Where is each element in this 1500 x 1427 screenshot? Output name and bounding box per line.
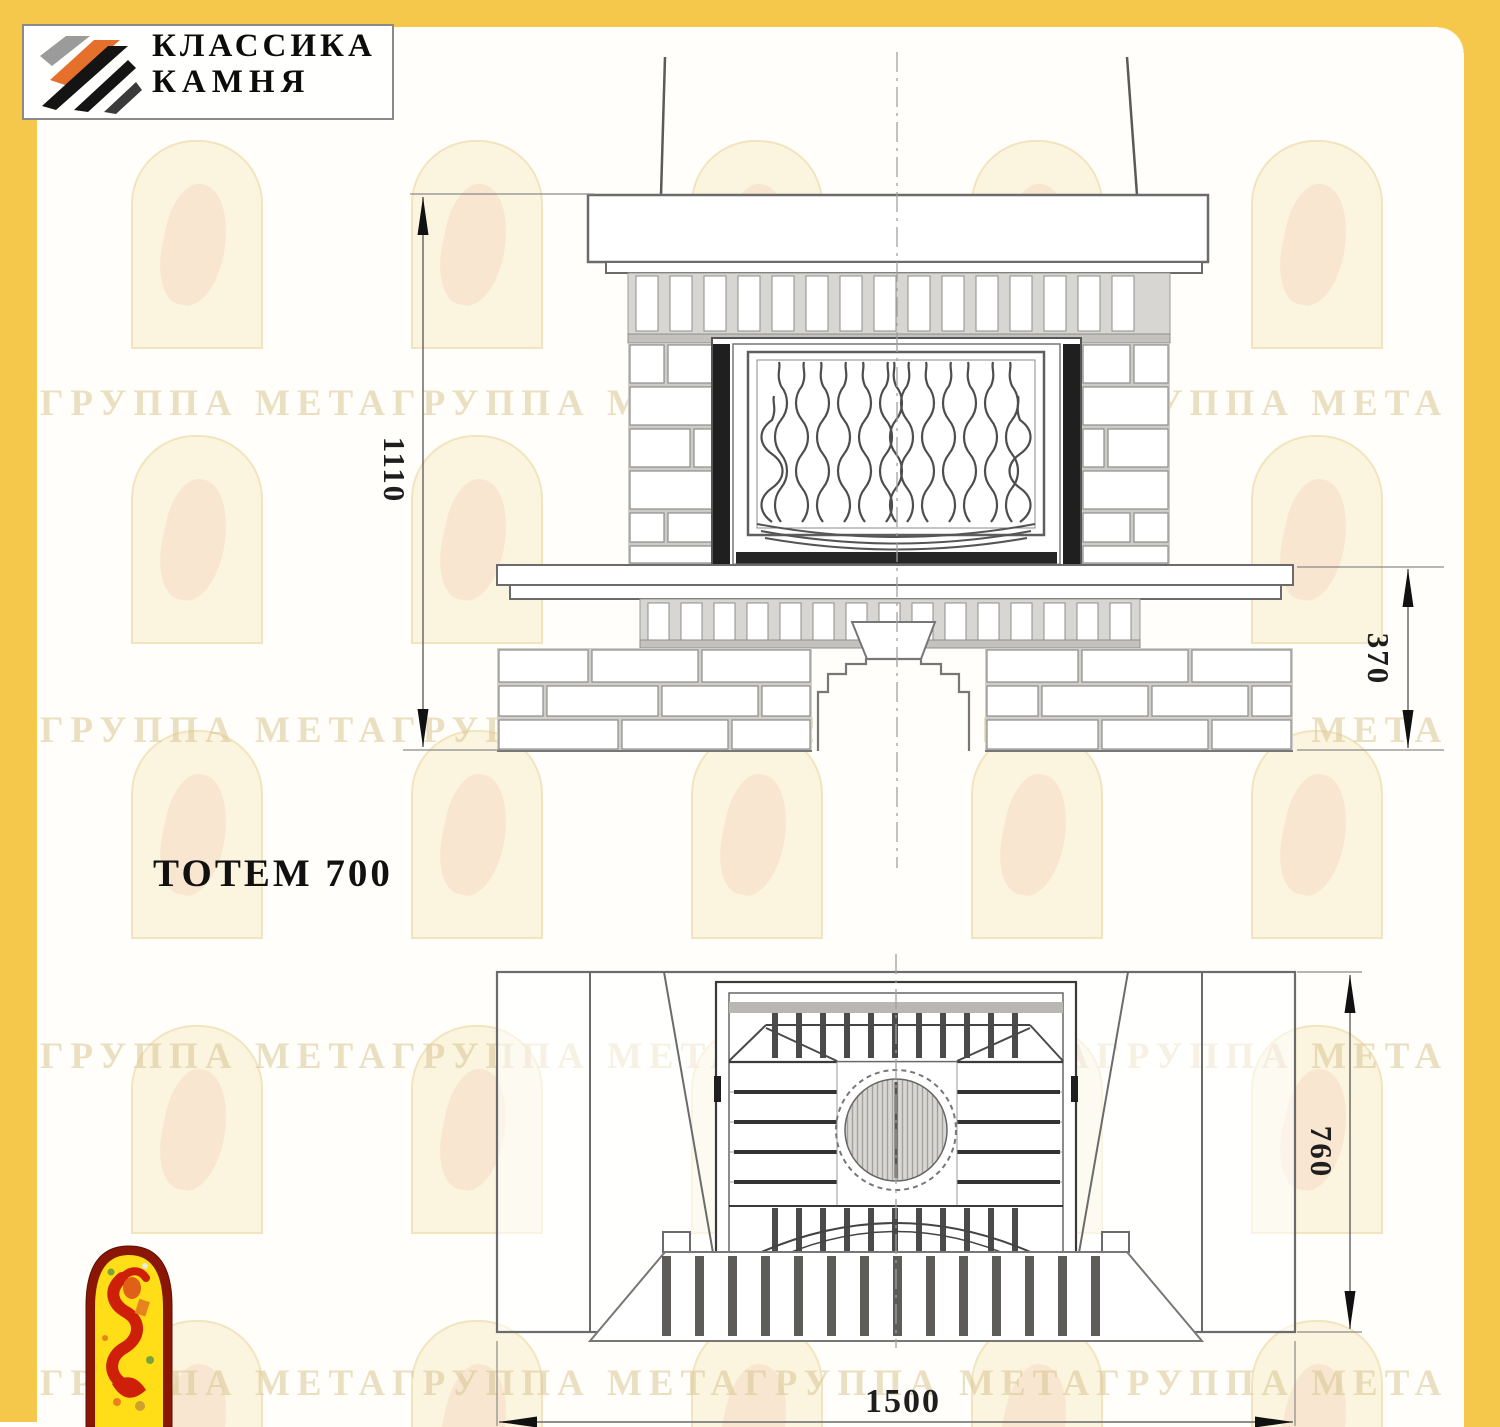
logo-line-1: КЛАССИКА: [152, 28, 376, 64]
stained-glass-logo: [82, 1242, 176, 1427]
dimension-plan-width: 1500: [497, 1341, 1295, 1427]
arch-keystone: [852, 622, 935, 659]
bench-lip: [510, 585, 1281, 599]
front-view: 1110 370: [377, 52, 1444, 868]
dim-label-1500: 1500: [865, 1383, 941, 1420]
dim-label-370: 370: [1361, 633, 1396, 686]
fireplace-technical-drawing: 1110 370: [0, 0, 1500, 1427]
bench-slab: [497, 565, 1293, 585]
dimension-plan-depth: 760: [1297, 972, 1362, 1332]
mantel-lip: [606, 262, 1202, 273]
dim-label-1110: 1110: [377, 437, 412, 504]
upper-dentil-slats: [636, 276, 1134, 331]
dimension-bench-height: 370: [1297, 567, 1444, 750]
company-logo: КЛАССИКА КАМНЯ: [22, 24, 394, 120]
firebox-glass-frame: [748, 352, 1044, 535]
model-label: ТОТЕМ 700: [153, 851, 393, 896]
mantel-shelf: [588, 195, 1208, 262]
catalog-page: ГРУППА МЕТАГРУППА МЕТАГРУППА МЕТАГРУППА …: [0, 0, 1500, 1427]
plan-view: 760 1500: [497, 954, 1362, 1427]
logo-line-2: КАМНЯ: [152, 64, 376, 100]
dim-label-760: 760: [1304, 1126, 1339, 1179]
chimney-lines: [661, 57, 1137, 195]
logo-text: КЛАССИКА КАМНЯ: [152, 28, 376, 100]
logo-stripes-icon: [32, 28, 152, 116]
